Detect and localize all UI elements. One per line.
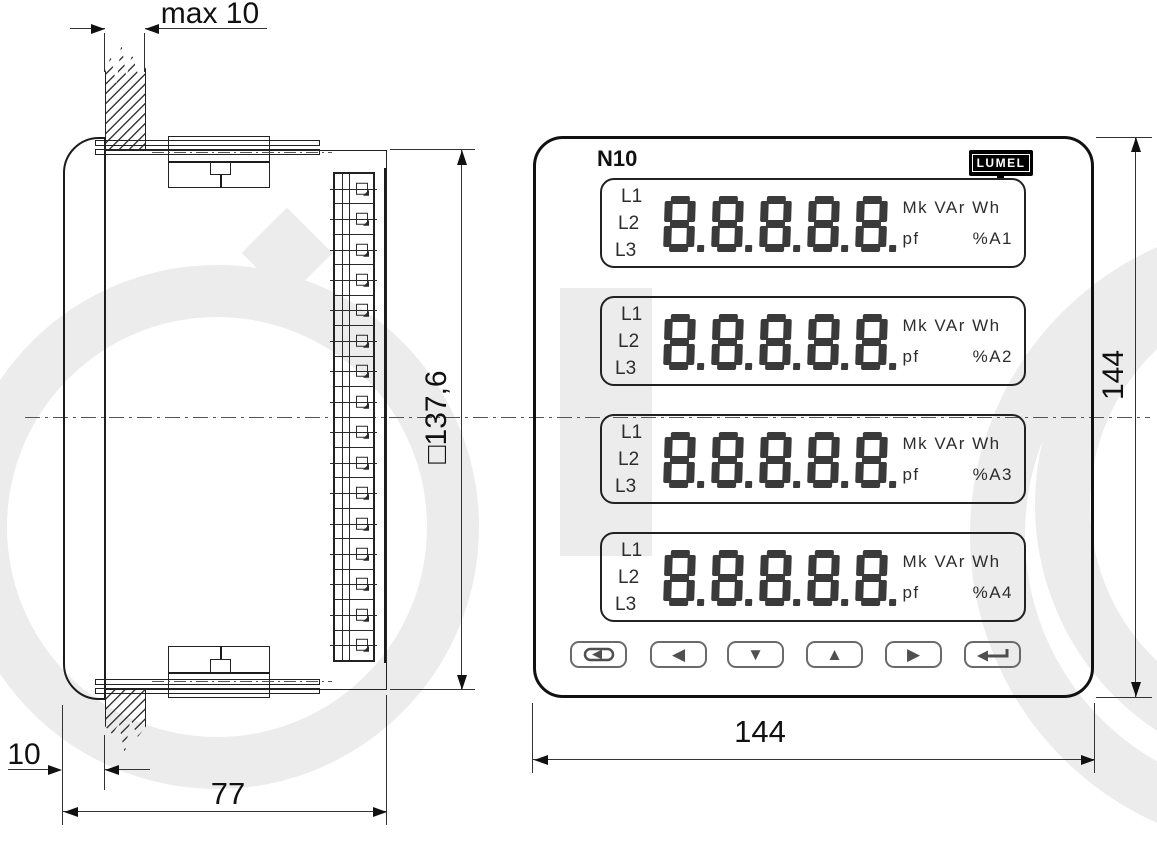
- screw-terminal-icon: [356, 213, 368, 225]
- unit-annunciators: Mk VAr Wh pf %A3: [902, 434, 1013, 485]
- seven-segment-digit: [711, 314, 744, 370]
- meter-front-view: N10 LUMEL L1 L2 L3 Mk VAr Wh pf %A1 L: [533, 136, 1094, 698]
- terminal-cell: [335, 539, 373, 569]
- unit-pf-label: pf: [902, 229, 919, 249]
- terminal-cell: [335, 204, 373, 234]
- phase-label: L1: [621, 537, 658, 564]
- arrow-up-icon: ▲: [826, 646, 843, 663]
- unit-channel-label: %A4: [973, 583, 1013, 603]
- dim-arrow: [1131, 682, 1141, 697]
- screw-terminal-icon: [356, 548, 368, 560]
- seven-segment-digit: [807, 550, 840, 606]
- enter-button[interactable]: [964, 641, 1021, 668]
- clamp-screw-head-top: [210, 161, 231, 175]
- terminal-cell: [335, 418, 373, 448]
- terminal-cell: [335, 509, 373, 539]
- seven-segment-digit: [663, 314, 696, 370]
- dim-arrow: [1081, 755, 1095, 765]
- phase-label: L3: [615, 355, 658, 382]
- clamp-stem: [220, 175, 222, 188]
- clamp-axis-bottom: [152, 681, 332, 682]
- screw-terminal-icon: [356, 517, 368, 529]
- phase-label: L2: [618, 328, 658, 355]
- extension-line: [144, 33, 145, 72]
- extension-line: [1096, 137, 1152, 138]
- seven-segment-display: [661, 195, 903, 252]
- extension-line: [104, 735, 105, 790]
- clamp-axis-top: [152, 152, 332, 153]
- phase-label: L2: [618, 446, 658, 473]
- terminal-cell: [335, 326, 373, 356]
- screw-terminal-icon: [356, 335, 368, 347]
- phase-label: L1: [621, 301, 658, 328]
- dim-arrow: [48, 765, 62, 775]
- seven-segment-digit: [855, 550, 888, 606]
- terminal-cell: [335, 387, 373, 417]
- phase-label: L1: [621, 419, 658, 446]
- unit-channel-label: %A3: [973, 465, 1013, 485]
- up-button[interactable]: ▲: [806, 641, 863, 668]
- screw-terminal-icon: [356, 365, 368, 377]
- dim-label-front-height: 144: [1097, 340, 1131, 410]
- display-row-3: L1 L2 L3 Mk VAr Wh pf %A3: [600, 414, 1026, 504]
- dim-label-cutout-size: □137,6: [419, 347, 455, 487]
- phase-label: L3: [615, 237, 658, 264]
- unit-channel-label: %A2: [973, 347, 1013, 367]
- extension-line: [532, 703, 533, 773]
- arrow-right-icon: ▶: [907, 646, 920, 663]
- seven-segment-digit: [759, 314, 792, 370]
- decimal-point: [793, 481, 800, 488]
- terminal-cell: [335, 448, 373, 478]
- dim-arrow: [457, 675, 467, 690]
- screw-terminal-icon: [356, 639, 368, 651]
- terminal-cell: [335, 174, 373, 204]
- phase-label: L1: [621, 183, 658, 210]
- display-row-4: L1 L2 L3 Mk VAr Wh pf %A4: [600, 532, 1026, 622]
- arrow-down-icon: ▼: [747, 646, 764, 663]
- right-button[interactable]: ▶: [885, 641, 942, 668]
- screw-terminal-icon: [356, 274, 368, 286]
- dim-label-panel-thickness: 10: [2, 738, 46, 772]
- decimal-point: [889, 245, 896, 252]
- dim-arrow: [91, 24, 105, 34]
- seven-segment-digit: [807, 432, 840, 488]
- seven-segment-display: [661, 431, 903, 488]
- phase-labels: L1 L2 L3: [602, 537, 658, 618]
- seven-segment-digit: [855, 314, 888, 370]
- seven-segment-digit: [855, 432, 888, 488]
- seven-segment-digit: [759, 550, 792, 606]
- extension-line: [1096, 697, 1152, 698]
- terminal-cell: [335, 600, 373, 630]
- dim-line: [461, 150, 462, 690]
- seven-segment-digit: [663, 550, 696, 606]
- brand-logo-text: LUMEL: [972, 154, 1031, 172]
- dim-label-front-width: 144: [700, 714, 820, 750]
- technical-drawing-canvas: max 10 10 77 □137,6 N10 LUMEL L1 L2 L3: [0, 0, 1157, 850]
- terminal-cell: [335, 631, 373, 660]
- model-label: N10: [597, 146, 637, 172]
- screw-terminal-icon: [356, 426, 368, 438]
- phase-label: L3: [615, 591, 658, 618]
- unit-labels-top: Mk VAr Wh: [902, 434, 1013, 454]
- phase-label: L3: [615, 473, 658, 500]
- decimal-point: [793, 245, 800, 252]
- decimal-point: [889, 599, 896, 606]
- extension-line: [104, 33, 105, 72]
- dim-arrow: [534, 755, 548, 765]
- screw-terminal-icon: [356, 456, 368, 468]
- decimal-point: [841, 245, 848, 252]
- decimal-point: [697, 245, 704, 252]
- seven-segment-digit: [807, 314, 840, 370]
- brand-logo: LUMEL: [969, 150, 1033, 176]
- dim-label-max-bezel: max 10: [150, 0, 270, 31]
- decimal-point: [793, 599, 800, 606]
- down-button[interactable]: ▼: [727, 641, 784, 668]
- dim-arrow: [457, 150, 467, 165]
- screw-terminal-icon: [356, 578, 368, 590]
- decimal-point: [889, 481, 896, 488]
- housing-back-wall-line: [384, 168, 386, 663]
- seven-segment-digit: [807, 196, 840, 252]
- phase-labels: L1 L2 L3: [602, 183, 658, 264]
- screw-terminal-icon: [356, 487, 368, 499]
- phase-label: L2: [618, 564, 658, 591]
- decimal-point: [841, 363, 848, 370]
- terminal-cell: [335, 265, 373, 295]
- decimal-point: [697, 599, 704, 606]
- decimal-point: [793, 363, 800, 370]
- unit-labels-top: Mk VAr Wh: [902, 316, 1013, 336]
- dim-arrow: [105, 765, 119, 775]
- arrow-left-icon: ◀: [672, 646, 685, 663]
- phase-labels: L1 L2 L3: [602, 301, 658, 382]
- display-row-2: L1 L2 L3 Mk VAr Wh pf %A2: [600, 296, 1026, 386]
- decimal-point: [745, 363, 752, 370]
- terminal-cell: [335, 570, 373, 600]
- screw-terminal-icon: [356, 304, 368, 316]
- unit-labels-top: Mk VAr Wh: [902, 552, 1013, 572]
- unit-annunciators: Mk VAr Wh pf %A1: [902, 198, 1013, 249]
- enter-icon: [974, 646, 1012, 664]
- screw-terminal-icon: [356, 243, 368, 255]
- phase-label: L2: [618, 210, 658, 237]
- extension-line: [62, 705, 63, 825]
- unit-annunciators: Mk VAr Wh pf %A4: [902, 552, 1013, 603]
- unit-channel-label: %A1: [973, 229, 1013, 249]
- decimal-point: [745, 599, 752, 606]
- dim-line: [533, 759, 1095, 760]
- screw-terminal-icon: [356, 396, 368, 408]
- screw-terminal-icon: [356, 182, 368, 194]
- dim-arrow: [64, 807, 78, 817]
- decimal-point: [841, 481, 848, 488]
- panel-wall-hatch-top: [105, 43, 146, 150]
- dim-arrow: [373, 807, 387, 817]
- unit-annunciators: Mk VAr Wh pf %A2: [902, 316, 1013, 367]
- seven-segment-digit: [711, 196, 744, 252]
- decimal-point: [697, 363, 704, 370]
- display-row-1: L1 L2 L3 Mk VAr Wh pf %A1: [600, 178, 1026, 268]
- dim-arrow: [1131, 137, 1141, 152]
- terminal-cell: [335, 235, 373, 265]
- terminal-strip: [333, 172, 375, 662]
- seven-segment-display: [661, 313, 903, 370]
- dim-label-depth: 77: [180, 776, 276, 812]
- seven-segment-digit: [663, 432, 696, 488]
- cycle-button[interactable]: [570, 641, 627, 668]
- seven-segment-digit: [711, 432, 744, 488]
- left-button[interactable]: ◀: [650, 641, 707, 668]
- seven-segment-digit: [711, 550, 744, 606]
- phase-labels: L1 L2 L3: [602, 419, 658, 500]
- terminal-cell: [335, 478, 373, 508]
- decimal-point: [745, 481, 752, 488]
- extension-line: [386, 695, 387, 825]
- unit-labels-top: Mk VAr Wh: [902, 198, 1013, 218]
- decimal-point: [841, 599, 848, 606]
- terminal-cell: [335, 296, 373, 326]
- seven-segment-display: [661, 549, 903, 606]
- decimal-point: [889, 363, 896, 370]
- seven-segment-digit: [855, 196, 888, 252]
- cycle-icon: [580, 645, 618, 665]
- decimal-point: [745, 245, 752, 252]
- dim-arrow: [145, 24, 159, 34]
- bezel-side-profile: [63, 137, 106, 700]
- unit-pf-label: pf: [902, 347, 919, 367]
- unit-pf-label: pf: [902, 465, 919, 485]
- seven-segment-digit: [759, 196, 792, 252]
- clamp-screw-head-bottom: [210, 659, 231, 673]
- seven-segment-digit: [759, 432, 792, 488]
- screw-terminal-icon: [356, 609, 368, 621]
- terminal-cell: [335, 357, 373, 387]
- decimal-point: [697, 481, 704, 488]
- clamp-stem: [220, 646, 222, 659]
- unit-pf-label: pf: [902, 583, 919, 603]
- seven-segment-digit: [663, 196, 696, 252]
- dim-line: [1135, 137, 1136, 697]
